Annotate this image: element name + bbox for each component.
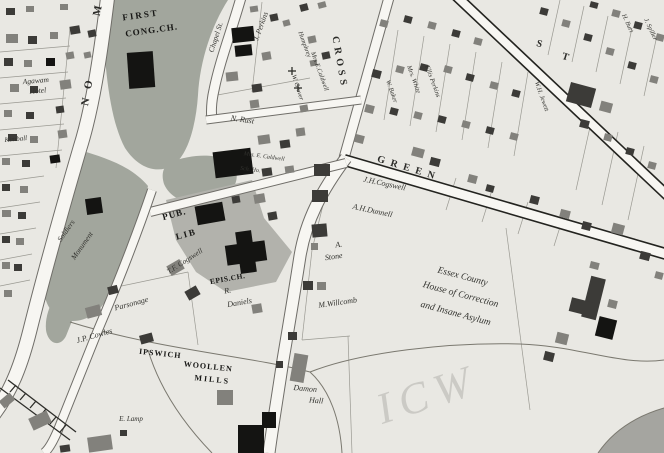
building bbox=[226, 71, 239, 81]
building bbox=[253, 193, 265, 204]
building bbox=[303, 281, 313, 290]
label-e-lamp: E. Lamp bbox=[118, 415, 143, 423]
building bbox=[10, 84, 19, 92]
building bbox=[261, 51, 271, 60]
label-o: O bbox=[82, 76, 96, 90]
label-hotel: Hotel bbox=[28, 85, 46, 96]
building bbox=[285, 165, 295, 173]
building bbox=[127, 51, 155, 89]
building bbox=[60, 4, 68, 10]
building bbox=[65, 51, 74, 59]
building bbox=[261, 167, 272, 176]
building bbox=[26, 112, 34, 119]
label-a: A. bbox=[334, 240, 343, 250]
building bbox=[2, 158, 10, 165]
building bbox=[14, 264, 22, 271]
building bbox=[85, 197, 103, 215]
building bbox=[69, 25, 80, 35]
building bbox=[2, 262, 10, 269]
building bbox=[276, 361, 283, 368]
building bbox=[4, 58, 13, 66]
label-r: R. bbox=[222, 286, 231, 296]
building bbox=[314, 164, 330, 176]
building bbox=[262, 412, 276, 428]
building bbox=[30, 136, 38, 143]
building bbox=[120, 430, 127, 436]
building bbox=[288, 332, 297, 340]
map-canvas: NOMCROSSGREENSTChapel St.FIRSTCONG.CH.PU… bbox=[0, 0, 664, 453]
building bbox=[56, 105, 65, 113]
building bbox=[231, 26, 254, 43]
building bbox=[26, 6, 34, 12]
building bbox=[231, 195, 240, 203]
building bbox=[250, 5, 259, 12]
building bbox=[311, 223, 327, 237]
building bbox=[295, 127, 305, 136]
label-hall: Hall bbox=[308, 395, 325, 405]
building bbox=[22, 160, 30, 167]
building bbox=[57, 129, 67, 138]
building bbox=[217, 390, 233, 405]
building bbox=[6, 8, 15, 15]
building bbox=[2, 184, 10, 191]
building bbox=[49, 154, 60, 163]
building bbox=[299, 104, 308, 112]
building bbox=[16, 238, 24, 245]
building bbox=[60, 444, 71, 452]
building bbox=[311, 243, 318, 250]
building bbox=[20, 186, 28, 193]
building bbox=[234, 44, 252, 57]
building bbox=[251, 303, 262, 314]
building bbox=[257, 134, 270, 145]
building bbox=[4, 290, 12, 297]
building bbox=[46, 58, 55, 66]
building bbox=[251, 83, 262, 92]
building bbox=[238, 425, 264, 453]
building bbox=[267, 211, 277, 220]
building bbox=[2, 210, 11, 217]
building bbox=[4, 110, 12, 117]
building bbox=[59, 79, 71, 89]
building bbox=[249, 99, 259, 108]
town-map: NOMCROSSGREENSTChapel St.FIRSTCONG.CH.PU… bbox=[0, 0, 664, 453]
building bbox=[18, 212, 26, 219]
building bbox=[28, 36, 37, 44]
building bbox=[24, 60, 32, 67]
building bbox=[279, 139, 290, 148]
building bbox=[2, 236, 10, 243]
building bbox=[312, 190, 328, 202]
building bbox=[317, 282, 326, 290]
building bbox=[6, 34, 18, 43]
building bbox=[50, 32, 58, 39]
